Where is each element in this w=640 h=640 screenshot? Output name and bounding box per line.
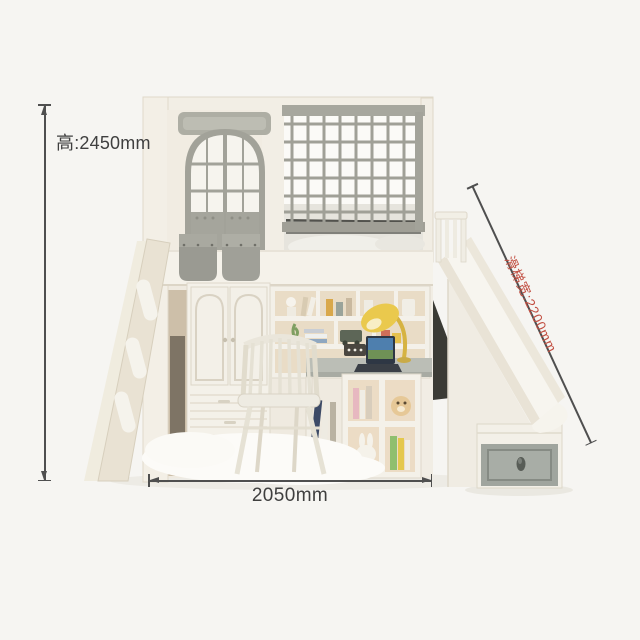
letter-blocks bbox=[344, 344, 366, 356]
height-dimension-label: 高:2450mm bbox=[56, 129, 151, 155]
width-dimension-label: 2050mm bbox=[148, 485, 432, 507]
product-dimension-image: 高:2450mm 2050mm 滑梯宽:2200mm bbox=[0, 0, 640, 640]
height-dim-down-arrow bbox=[41, 471, 47, 480]
height-dimension-line bbox=[44, 104, 46, 481]
window-wall bbox=[167, 110, 271, 255]
width-dim-right-arrow bbox=[422, 477, 431, 483]
lattice-top-rail bbox=[282, 105, 425, 116]
width-dimension-line bbox=[148, 480, 432, 482]
wardrobe bbox=[187, 283, 270, 441]
height-dim-bottom-cap bbox=[38, 480, 51, 482]
arched-window bbox=[185, 129, 265, 252]
height-dim-up-arrow bbox=[41, 106, 47, 115]
width-dim-left-arrow bbox=[150, 477, 159, 483]
slide-drawer-base bbox=[477, 424, 562, 488]
lattice-bottom-rail bbox=[282, 222, 425, 232]
upper-bunk bbox=[282, 105, 425, 259]
hamster-toy bbox=[391, 396, 411, 416]
